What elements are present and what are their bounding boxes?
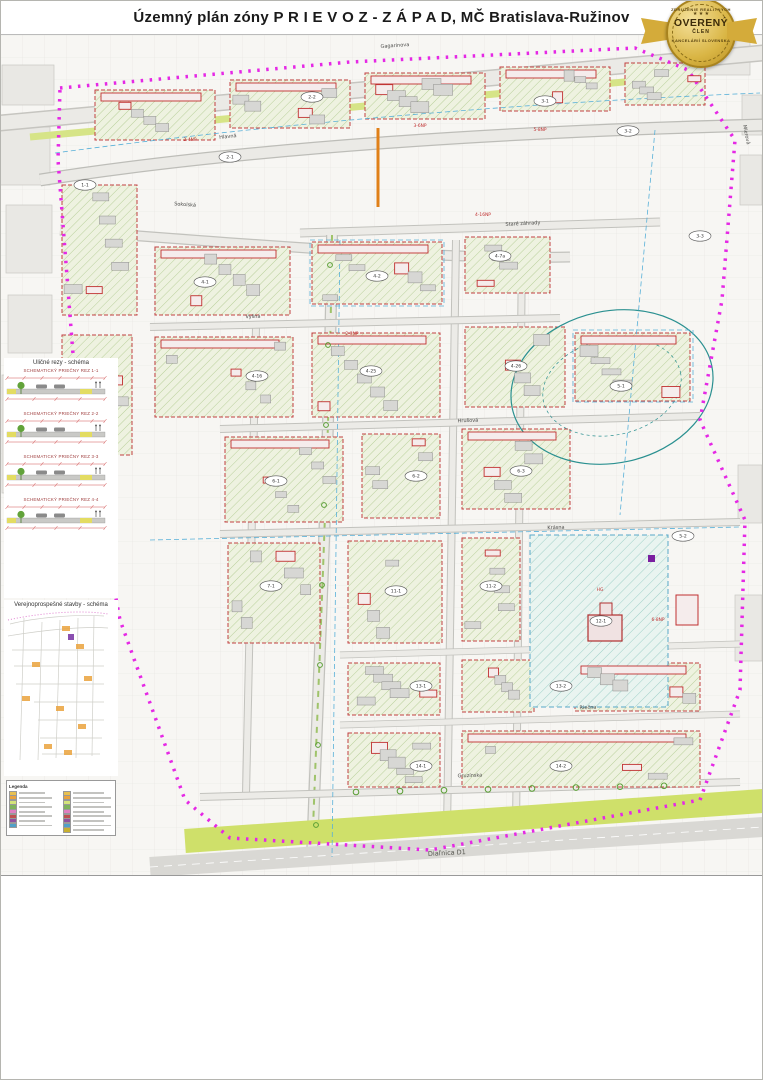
- street-sections-title: Uličné rezy - schéma: [4, 358, 118, 368]
- building-existing: [322, 89, 337, 98]
- public-works-panel: Verejnoprospešné stavby - schéma: [4, 600, 118, 776]
- building-existing: [345, 360, 358, 369]
- building-existing: [586, 83, 597, 89]
- building-proposed: [670, 687, 683, 697]
- building-existing: [99, 216, 115, 224]
- svg-text:4-16: 4-16: [252, 374, 263, 380]
- svg-text:4-26: 4-26: [511, 364, 522, 370]
- building-existing: [413, 743, 431, 749]
- block-code-badge: 4-7a: [489, 251, 511, 261]
- building-proposed: [412, 439, 425, 446]
- svg-text:6-3: 6-3: [517, 469, 525, 475]
- building-existing: [241, 617, 252, 628]
- inset-legend-item: [9, 823, 59, 828]
- block-code-badge: 13-2: [550, 681, 572, 691]
- building-existing: [485, 245, 502, 251]
- building-existing: [374, 674, 393, 682]
- building-proposed: [468, 734, 686, 742]
- public-work-highlight: [32, 662, 40, 667]
- building-existing: [602, 369, 621, 375]
- building-existing: [250, 551, 261, 562]
- building-storeys-label: 3-6NP: [413, 123, 426, 129]
- svg-text:3-2: 3-2: [624, 129, 632, 135]
- public-work-highlight: [62, 626, 70, 631]
- public-works-inset-map: [4, 610, 112, 766]
- cross-section-diagram: [4, 373, 108, 403]
- block-code-badge: 4-2: [366, 271, 388, 281]
- building-proposed: [371, 76, 471, 84]
- block-code-badge: 13-1: [410, 681, 432, 691]
- building-proposed: [231, 440, 329, 448]
- building-existing: [205, 254, 217, 264]
- street-label: Hrušová: [457, 417, 478, 425]
- building-existing: [64, 285, 82, 294]
- building-proposed: [86, 287, 102, 294]
- building-proposed: [477, 280, 494, 286]
- building-existing: [357, 697, 375, 705]
- svg-text:6-1: 6-1: [272, 479, 280, 485]
- street-cross-section: SCHEMATICKÝ PRIEČNY REZ 4-4: [4, 497, 118, 537]
- building-existing: [131, 109, 143, 117]
- building-proposed: [484, 467, 500, 476]
- badge-inner-ring: [672, 4, 730, 62]
- inset-legend-item: [63, 828, 113, 833]
- public-work-highlight: [22, 696, 30, 701]
- building-existing: [498, 604, 514, 611]
- building-existing: [397, 768, 414, 774]
- svg-text:3-3: 3-3: [696, 234, 704, 240]
- building-proposed: [485, 550, 500, 556]
- block-code-badge: 6-2: [405, 471, 427, 481]
- building-existing: [505, 493, 522, 502]
- svg-text:5-2: 5-2: [679, 534, 687, 540]
- svg-text:7-1: 7-1: [267, 584, 275, 590]
- public-work-highlight: [64, 750, 72, 755]
- building-existing: [408, 272, 422, 283]
- block-code-badge: 6-1: [265, 476, 287, 486]
- block-code-badge: 12-1: [590, 616, 612, 626]
- public-work-highlight: [56, 706, 64, 711]
- building-existing: [591, 358, 610, 364]
- street-sections-list: SCHEMATICKÝ PRIEČNY REZ 1-1SCHEMATICKÝ P…: [4, 368, 118, 537]
- block-code-badge: 5-1: [610, 381, 632, 391]
- svg-text:13-2: 13-2: [556, 684, 567, 690]
- block-code-badge: 11-2: [480, 581, 502, 591]
- public-work-highlight: [44, 744, 52, 749]
- building-proposed: [119, 102, 131, 109]
- block-code-badge: 1-1: [74, 180, 96, 190]
- block-code-badge: 14-2: [550, 761, 572, 771]
- building-existing: [434, 84, 453, 95]
- building-existing: [112, 262, 129, 270]
- overeny-badge: ZDRUŽENIE REALITNÝCH ★ ★ ★ OVERENÝ ČLEN …: [641, 0, 757, 72]
- building-proposed: [318, 336, 426, 344]
- building-existing: [648, 773, 667, 779]
- building-existing: [261, 395, 271, 403]
- building-existing: [323, 295, 338, 301]
- building-existing: [93, 193, 109, 201]
- building-proposed: [688, 76, 701, 82]
- building-existing: [156, 124, 169, 132]
- building-existing: [411, 102, 429, 113]
- building-existing: [485, 746, 495, 753]
- cross-section-diagram: [4, 416, 108, 446]
- building-proposed: [101, 93, 201, 101]
- building-existing: [368, 610, 380, 621]
- building-existing: [377, 627, 390, 638]
- svg-text:1-1: 1-1: [81, 183, 89, 189]
- block-code-badge: 5-2: [672, 531, 694, 541]
- building-proposed: [161, 250, 276, 258]
- building-storeys-label: 2-3NP: [345, 331, 358, 337]
- svg-text:4-2: 4-2: [373, 274, 381, 280]
- building-existing: [524, 386, 540, 396]
- cross-section-diagram: [4, 502, 108, 532]
- building-existing: [420, 285, 435, 291]
- building-existing: [508, 690, 519, 699]
- building-existing: [284, 568, 303, 578]
- building-existing: [166, 355, 177, 363]
- building-existing: [534, 334, 550, 345]
- svg-text:2-1: 2-1: [226, 155, 234, 161]
- public-work-highlight: [84, 676, 92, 681]
- building-existing: [349, 265, 365, 271]
- building-existing: [515, 441, 532, 450]
- building-existing: [500, 262, 518, 269]
- building-existing: [647, 93, 661, 100]
- building-proposed: [161, 340, 279, 348]
- building-proposed: [358, 593, 370, 604]
- building-existing: [388, 757, 405, 768]
- public-works-title: Verejnoprospešné stavby - schéma: [4, 600, 118, 610]
- building-existing: [336, 255, 352, 261]
- building-existing: [613, 680, 628, 691]
- block-code-badge: 14-1: [410, 761, 432, 771]
- svg-text:14-2: 14-2: [556, 764, 567, 770]
- building-existing: [390, 689, 409, 698]
- building-existing: [366, 467, 380, 475]
- street-cross-section: SCHEMATICKÝ PRIEČNY REZ 2-2: [4, 411, 118, 451]
- svg-text:11-1: 11-1: [391, 589, 402, 595]
- building-existing: [494, 480, 511, 489]
- building-existing: [465, 622, 481, 629]
- building-existing: [246, 382, 256, 390]
- building-storeys-label: 4-16NP: [475, 212, 491, 218]
- building-existing: [276, 492, 287, 498]
- building-existing: [386, 560, 399, 566]
- building-storeys-label: 5-8NP: [533, 127, 546, 133]
- building-existing: [419, 453, 433, 461]
- building-existing: [105, 239, 122, 247]
- building-proposed: [622, 764, 641, 770]
- building-existing: [575, 77, 586, 83]
- block-code-badge: 7-1: [260, 581, 282, 591]
- inset-legend-title: Legenda: [9, 782, 113, 791]
- block-code-badge: 4-16: [246, 371, 268, 381]
- building-existing: [331, 346, 344, 355]
- building-proposed: [581, 336, 676, 344]
- building-existing: [371, 387, 385, 397]
- block-code-badge: 4-1: [194, 277, 216, 287]
- street-label: Vyšná: [245, 313, 260, 321]
- block-code-badge: 4-25: [360, 366, 382, 376]
- svg-text:13-1: 13-1: [416, 684, 427, 690]
- block-code-badge: 3-1: [534, 96, 556, 106]
- building-existing: [301, 585, 311, 595]
- street-cross-section: SCHEMATICKÝ PRIEČNY REZ 1-1: [4, 368, 118, 408]
- building-existing: [405, 777, 422, 783]
- building-existing: [299, 448, 311, 455]
- street-label: Riečna: [579, 704, 596, 712]
- building-existing: [384, 401, 398, 411]
- building-existing: [144, 116, 156, 124]
- public-work-highlight: [78, 724, 86, 729]
- svg-text:6-2: 6-2: [412, 474, 420, 480]
- building-existing: [219, 264, 231, 274]
- svg-text:4-7a: 4-7a: [495, 254, 506, 260]
- building-existing: [674, 738, 693, 745]
- street-label: Gruzínska: [457, 772, 482, 780]
- building-storeys-label: 6-8NP: [651, 617, 664, 623]
- block-code-badge: 6-3: [510, 466, 532, 476]
- building-storeys-label: 2-4NP: [183, 137, 196, 143]
- building-existing: [515, 373, 531, 383]
- building-existing: [232, 601, 242, 612]
- svg-text:3-1: 3-1: [541, 99, 549, 105]
- svg-text:12-1: 12-1: [596, 619, 607, 625]
- building-proposed: [318, 402, 330, 411]
- building-proposed: [468, 432, 556, 440]
- plan-sheet: Územný plán zóny P R I E V O Z - Z Á P A…: [0, 0, 763, 1080]
- building-existing: [275, 342, 286, 350]
- building-existing: [564, 70, 574, 81]
- street-cross-section: SCHEMATICKÝ PRIEČNY REZ 3-3: [4, 454, 118, 494]
- building-proposed: [236, 83, 336, 91]
- svg-text:4-25: 4-25: [366, 369, 377, 375]
- building-existing: [247, 285, 260, 296]
- street-label: Krásna: [547, 524, 564, 532]
- building-existing: [580, 346, 598, 357]
- building-existing: [310, 115, 325, 124]
- block-code-badge: 2-1: [219, 152, 241, 162]
- inset-legend-panel: Legenda: [6, 780, 116, 836]
- svg-text:14-1: 14-1: [416, 764, 427, 770]
- building-existing: [525, 454, 543, 464]
- building-proposed: [662, 386, 680, 397]
- street-sections-panel: Uličné rezy - schéma SCHEMATICKÝ PRIEČNY…: [4, 358, 118, 598]
- building-proposed: [276, 551, 295, 561]
- svg-text:4-1: 4-1: [201, 280, 209, 286]
- svg-text:5-1: 5-1: [617, 384, 625, 390]
- svg-text:2-2: 2-2: [308, 95, 316, 101]
- building-proposed: [231, 369, 241, 376]
- inset-legend-items: [9, 791, 113, 832]
- building-proposed: [395, 263, 409, 274]
- building-existing: [373, 481, 388, 489]
- block-code-badge: 2-2: [301, 92, 323, 102]
- legend-strip: [0, 875, 763, 1080]
- building-existing: [600, 674, 614, 685]
- public-work-highlight: [76, 644, 84, 649]
- building-existing: [588, 668, 602, 678]
- building-proposed: [191, 296, 202, 306]
- building-existing: [288, 505, 299, 512]
- svg-text:11-2: 11-2: [486, 584, 497, 590]
- block-code-badge: 4-26: [505, 361, 527, 371]
- building-existing: [323, 476, 336, 483]
- building-existing: [366, 667, 384, 675]
- building-proposed: [318, 245, 428, 253]
- building-storeys-label: HG: [597, 587, 604, 593]
- building-existing: [490, 568, 505, 574]
- building-existing: [683, 693, 696, 703]
- cross-section-diagram: [4, 459, 108, 489]
- building-existing: [312, 462, 324, 469]
- building-existing: [245, 101, 261, 111]
- block-code-badge: 3-2: [617, 126, 639, 136]
- block-code-badge: 3-3: [689, 231, 711, 241]
- block-code-badge: 11-1: [385, 586, 407, 596]
- badge-seal: ZDRUŽENIE REALITNÝCH ★ ★ ★ OVERENÝ ČLEN …: [666, 0, 736, 68]
- building-existing: [233, 274, 245, 285]
